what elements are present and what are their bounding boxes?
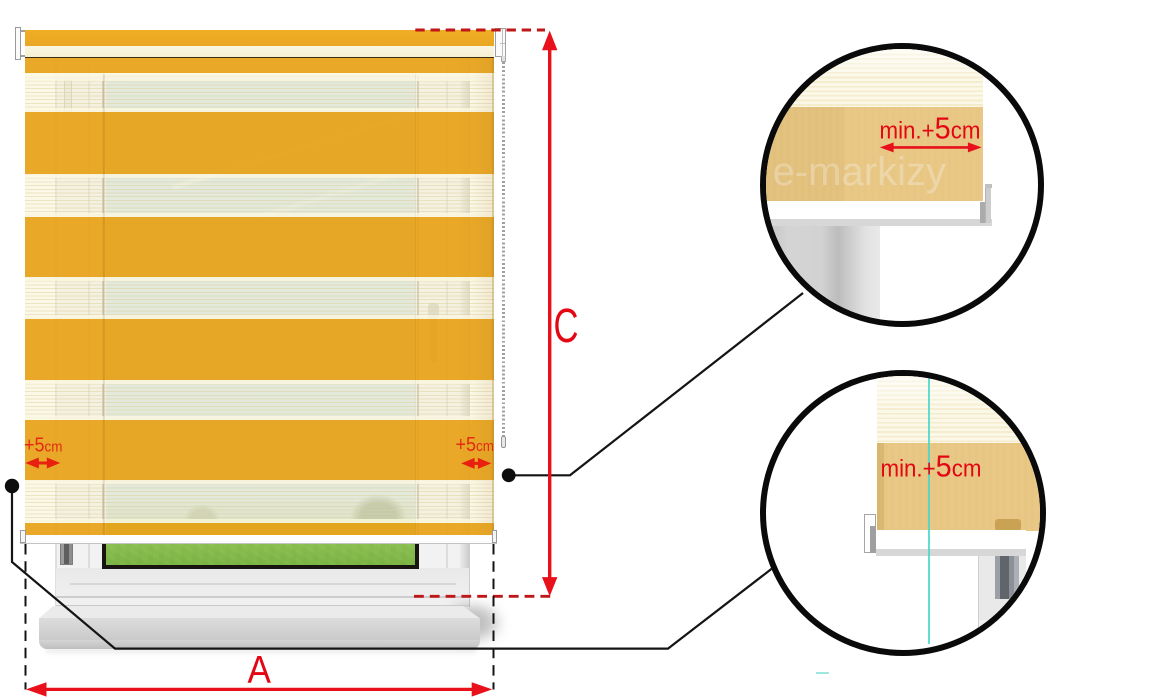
svg-text:+5cm: +5cm xyxy=(24,434,62,456)
svg-text:A: A xyxy=(248,647,272,691)
svg-text:min.+5cm: min.+5cm xyxy=(880,111,981,145)
svg-text:min.+5cm: min.+5cm xyxy=(881,449,982,483)
svg-text:+5cm: +5cm xyxy=(456,434,494,456)
svg-text:C: C xyxy=(554,298,579,352)
